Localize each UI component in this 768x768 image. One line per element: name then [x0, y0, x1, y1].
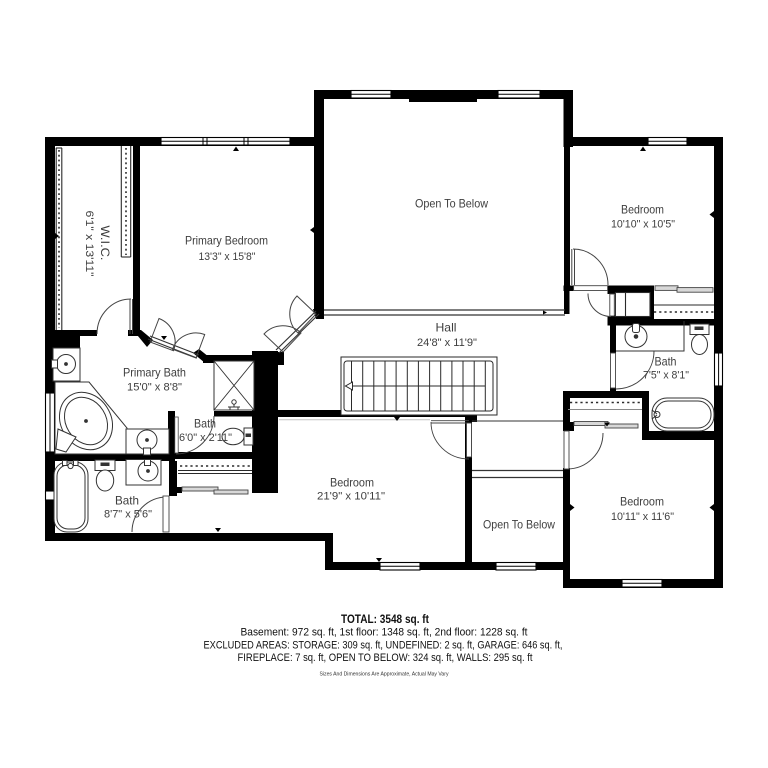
svg-text:10'11" x 11'6": 10'11" x 11'6" [611, 511, 674, 523]
svg-text:FIREPLACE: 7 sq. ft, OPEN TO B: FIREPLACE: 7 sq. ft, OPEN TO BELOW: 324 … [238, 652, 533, 664]
svg-text:24'8" x 11'9": 24'8" x 11'9" [417, 337, 477, 349]
svg-text:6'1" x 13'11": 6'1" x 13'11" [83, 211, 95, 277]
svg-text:8'7" x 5'6": 8'7" x 5'6" [104, 509, 152, 521]
svg-text:Open To Below: Open To Below [415, 197, 488, 211]
svg-text:Bath: Bath [194, 417, 216, 431]
svg-text:6'0" x 2'11": 6'0" x 2'11" [179, 432, 232, 444]
svg-text:Bedroom: Bedroom [620, 495, 664, 509]
svg-text:Bedroom: Bedroom [330, 476, 374, 490]
svg-text:W.I.C.: W.I.C. [98, 226, 112, 261]
svg-text:Primary Bath: Primary Bath [123, 366, 186, 380]
svg-text:10'10" x 10'5": 10'10" x 10'5" [611, 219, 675, 231]
svg-text:Open To Below: Open To Below [483, 518, 555, 532]
svg-text:Primary Bedroom: Primary Bedroom [185, 234, 268, 248]
svg-text:Bath: Bath [655, 355, 677, 369]
svg-text:7'5" x 8'1": 7'5" x 8'1" [643, 370, 689, 382]
svg-text:Bath: Bath [115, 494, 139, 508]
svg-text:13'3" x 15'8": 13'3" x 15'8" [199, 251, 256, 263]
svg-text:Basement: 972 sq. ft, 1st floo: Basement: 972 sq. ft, 1st floor: 1348 sq… [241, 627, 528, 639]
svg-text:Sizes And Dimensions Are Appro: Sizes And Dimensions Are Approximate, Ac… [320, 672, 449, 678]
svg-text:21'9" x 10'11": 21'9" x 10'11" [317, 491, 385, 503]
svg-text:Hall: Hall [436, 321, 457, 335]
svg-text:TOTAL: 3548 sq. ft: TOTAL: 3548 sq. ft [341, 614, 429, 626]
svg-text:15'0" x 8'8": 15'0" x 8'8" [127, 382, 182, 394]
svg-text:EXCLUDED AREAS: STORAGE: 309 s: EXCLUDED AREAS: STORAGE: 309 sq. ft, UND… [204, 640, 563, 652]
svg-text:Bedroom: Bedroom [621, 203, 664, 217]
